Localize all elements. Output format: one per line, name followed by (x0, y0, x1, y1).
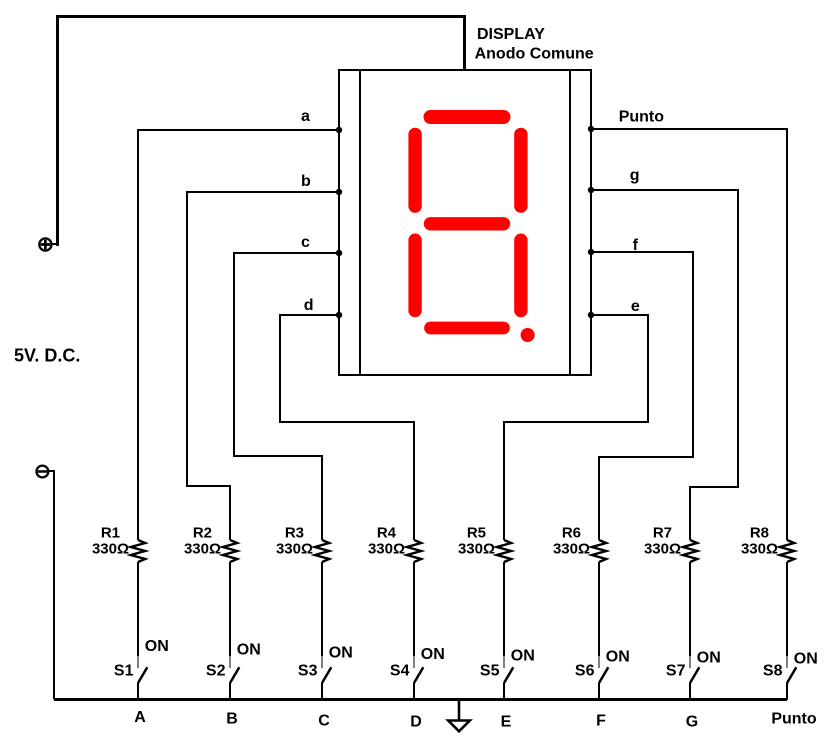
svg-text:g: g (630, 167, 640, 184)
svg-text:A: A (134, 709, 146, 726)
svg-text:330Ω: 330Ω (368, 541, 405, 558)
svg-text:e: e (631, 298, 640, 315)
svg-text:ON: ON (606, 649, 630, 666)
svg-text:330Ω: 330Ω (92, 541, 129, 558)
svg-text:E: E (501, 713, 512, 730)
svg-text:R4: R4 (377, 525, 397, 542)
svg-text:S1: S1 (114, 663, 134, 680)
svg-text:b: b (301, 173, 311, 190)
svg-text:330Ω: 330Ω (276, 541, 313, 558)
svg-text:ON: ON (697, 650, 721, 667)
svg-text:ON: ON (511, 648, 535, 665)
svg-text:ON: ON (237, 642, 261, 659)
svg-text:d: d (304, 297, 314, 314)
svg-text:330Ω: 330Ω (553, 541, 590, 558)
svg-text:ON: ON (794, 651, 818, 668)
svg-text:Punto: Punto (619, 108, 665, 125)
svg-text:ON: ON (329, 645, 353, 662)
svg-text:Punto: Punto (771, 710, 817, 727)
svg-text:B: B (226, 711, 238, 728)
svg-text:S7: S7 (666, 663, 686, 680)
svg-text:S3: S3 (298, 663, 318, 680)
svg-text:Anodo Comune: Anodo Comune (475, 45, 594, 62)
svg-text:S5: S5 (480, 663, 500, 680)
svg-text:S6: S6 (575, 663, 595, 680)
svg-text:R2: R2 (193, 525, 212, 542)
svg-text:R1: R1 (101, 525, 120, 542)
svg-text:F: F (596, 713, 606, 730)
svg-text:D: D (410, 713, 422, 730)
svg-text:330Ω: 330Ω (644, 541, 681, 558)
svg-text:f: f (633, 237, 639, 254)
svg-text:S4: S4 (390, 663, 410, 680)
svg-text:R7: R7 (653, 525, 672, 542)
svg-text:R3: R3 (285, 525, 304, 542)
svg-text:330Ω: 330Ω (458, 541, 495, 558)
svg-text:S8: S8 (763, 663, 783, 680)
svg-text:R5: R5 (467, 525, 486, 542)
svg-text:c: c (301, 234, 310, 251)
svg-text:DISPLAY: DISPLAY (477, 26, 545, 43)
svg-text:330Ω: 330Ω (741, 541, 778, 558)
svg-text:S2: S2 (206, 663, 226, 680)
svg-text:a: a (301, 108, 310, 125)
svg-text:R8: R8 (750, 525, 769, 542)
svg-text:G: G (686, 713, 698, 730)
svg-text:R6: R6 (562, 525, 581, 542)
svg-text:ON: ON (145, 638, 169, 655)
svg-text:ON: ON (421, 646, 445, 663)
svg-text:330Ω: 330Ω (184, 541, 221, 558)
svg-text:5V. D.C.: 5V. D.C. (14, 346, 80, 366)
svg-text:C: C (318, 713, 330, 730)
